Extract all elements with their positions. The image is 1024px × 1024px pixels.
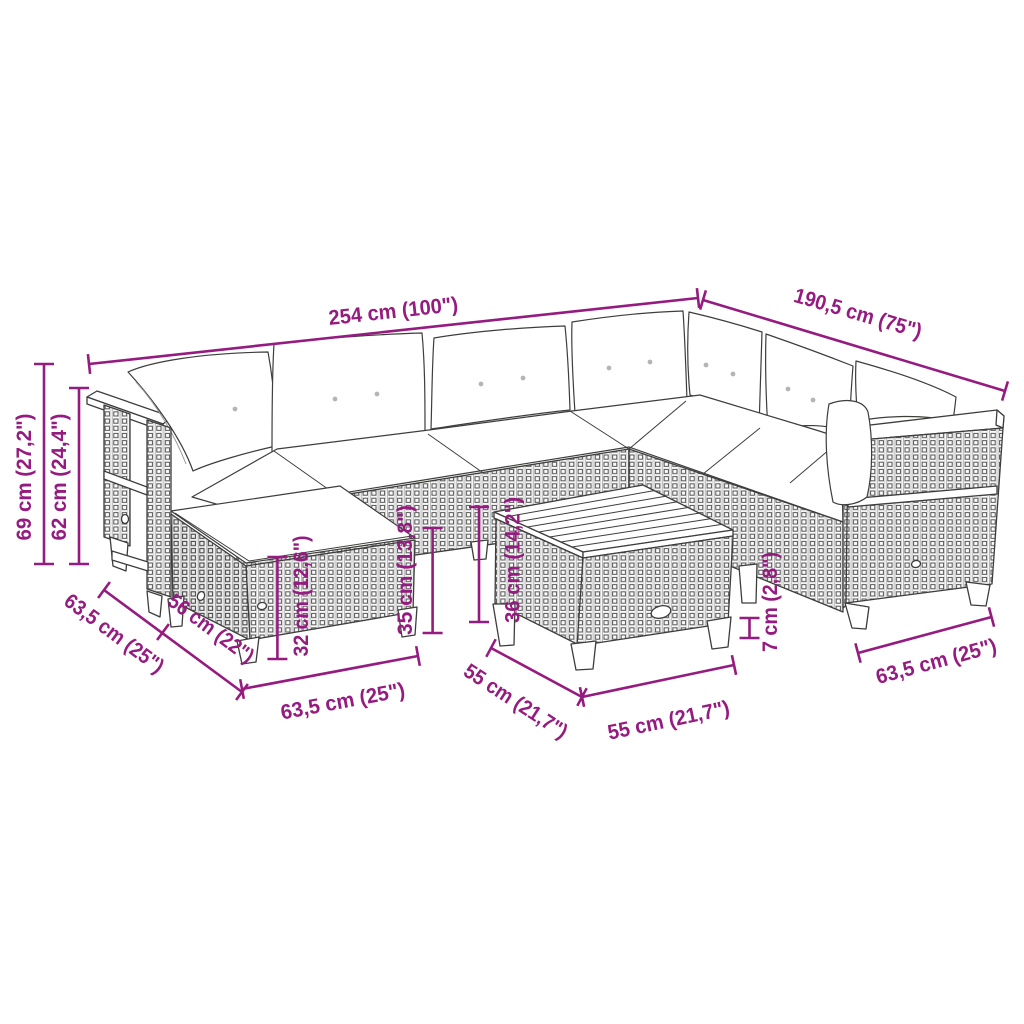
svg-text:32 cm (12,6"): 32 cm (12,6") bbox=[290, 536, 313, 657]
svg-text:7 cm (2,8"): 7 cm (2,8") bbox=[759, 552, 782, 652]
svg-text:69 cm (27,2"): 69 cm (27,2") bbox=[13, 414, 36, 541]
svg-text:36 cm (14,2"): 36 cm (14,2") bbox=[502, 497, 525, 623]
svg-text:35 cm (13,8"): 35 cm (13,8") bbox=[394, 505, 417, 635]
svg-text:62 cm (24,4"): 62 cm (24,4") bbox=[48, 414, 71, 541]
